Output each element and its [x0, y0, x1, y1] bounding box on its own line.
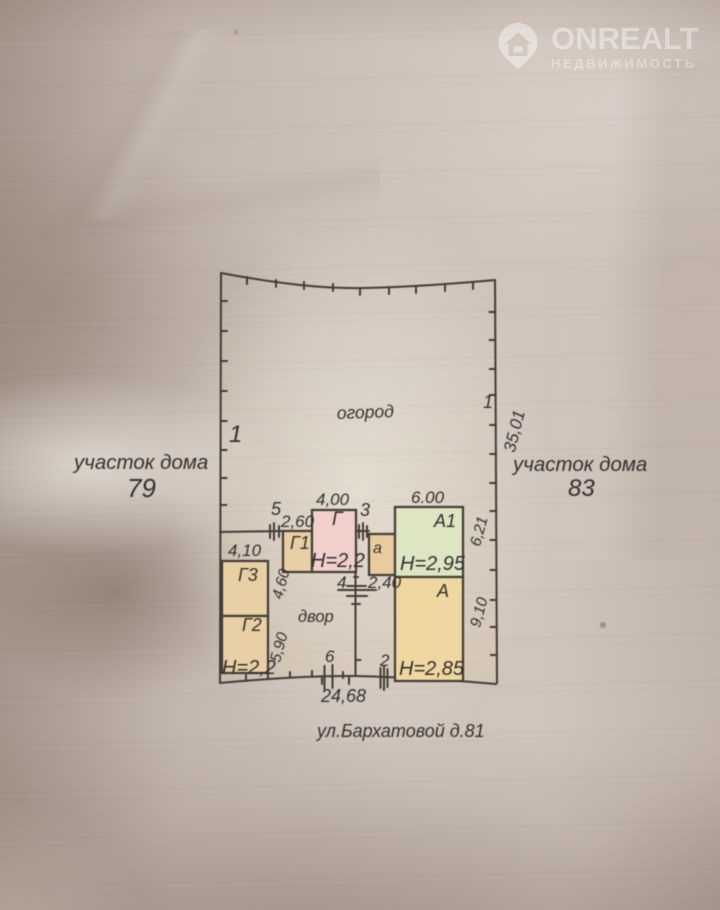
svg-text:ул.Бархатовой д.81: ул.Бархатовой д.81: [315, 721, 485, 741]
svg-text:2,40: 2,40: [367, 573, 402, 592]
svg-text:83: 83: [568, 475, 595, 502]
svg-text:Г1: Г1: [290, 533, 310, 553]
svg-text:3: 3: [360, 500, 370, 520]
svg-text:а: а: [373, 540, 382, 557]
svg-text:Н=2,85: Н=2,85: [399, 658, 465, 680]
svg-text:6.00: 6.00: [411, 488, 445, 507]
svg-text:участок дома: участок дома: [511, 453, 647, 476]
svg-text:Н=2,2: Н=2,2: [222, 657, 276, 679]
svg-text:35,01: 35,01: [500, 408, 529, 454]
svg-text:А: А: [436, 581, 449, 601]
svg-text:двор: двор: [298, 608, 334, 626]
svg-text:79: 79: [127, 473, 156, 503]
svg-text:А1: А1: [433, 511, 456, 531]
svg-text:24,68: 24,68: [320, 686, 366, 706]
svg-text:участок дома: участок дома: [72, 451, 208, 474]
svg-text:Г3: Г3: [238, 565, 258, 585]
svg-text:4: 4: [337, 573, 346, 592]
svg-text:Н=2,95: Н=2,95: [400, 553, 466, 575]
svg-text:6: 6: [325, 647, 335, 666]
svg-text:2,60: 2,60: [280, 512, 315, 531]
svg-text:2: 2: [379, 651, 390, 670]
svg-text:4,00: 4,00: [316, 490, 350, 509]
svg-text:Г: Г: [332, 509, 344, 530]
svg-text:1: 1: [483, 392, 493, 412]
svg-text:4,10: 4,10: [228, 541, 262, 560]
svg-text:огород: огород: [336, 401, 394, 423]
svg-text:1: 1: [229, 421, 242, 448]
svg-text:Г2: Г2: [242, 615, 262, 635]
svg-text:Н=2,2: Н=2,2: [311, 550, 365, 572]
